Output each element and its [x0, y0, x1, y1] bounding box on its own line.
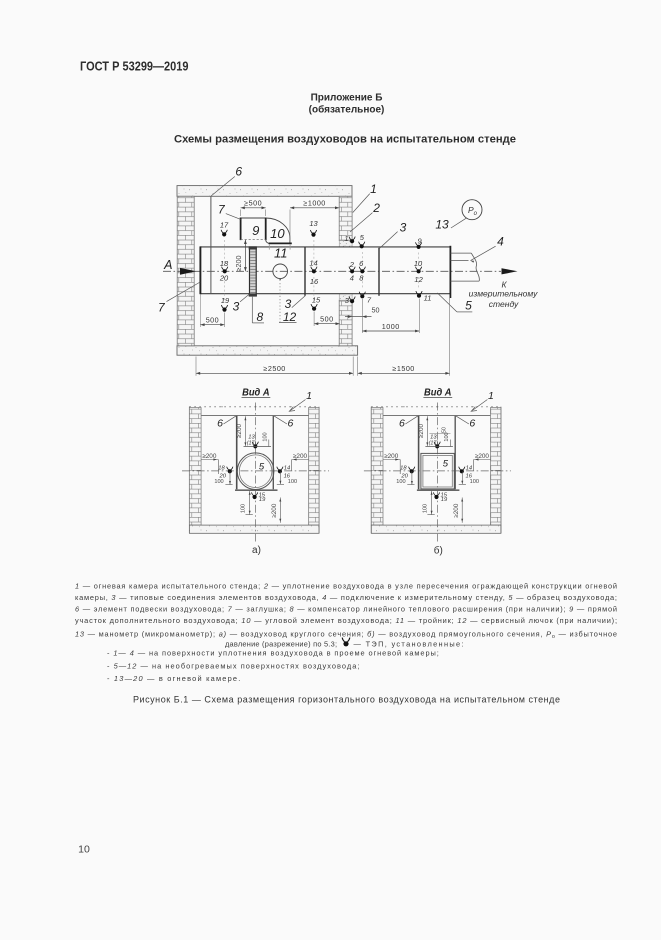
svg-text:9: 9	[252, 223, 259, 238]
svg-text:8: 8	[256, 310, 263, 324]
svg-text:≥1500: ≥1500	[392, 364, 414, 373]
svg-text:— ТЭП, установленные:: — ТЭП, установленные:	[354, 640, 464, 649]
svg-text:20: 20	[219, 274, 229, 283]
svg-text:6 — элемент подвески воздухово: 6 — элемент подвески воздуховода; 7 — за…	[75, 604, 617, 613]
svg-text:15: 15	[312, 296, 321, 305]
svg-text:ГОСТ Р 53299—2019: ГОСТ Р 53299—2019	[80, 59, 189, 74]
svg-text:6: 6	[217, 418, 223, 430]
svg-text:Вид А: Вид А	[424, 387, 452, 399]
svg-text:18: 18	[400, 465, 407, 471]
svg-text:≥2500: ≥2500	[263, 364, 285, 373]
svg-text:13 — манометр (микроманометр);: 13 — манометр (микроманометр); а) — возд…	[75, 629, 617, 640]
svg-text:11: 11	[424, 293, 432, 302]
svg-text:100: 100	[396, 479, 405, 485]
svg-text:1 — огневая камера испытательн: 1 — огневая камера испытательного стенда…	[75, 581, 617, 590]
svg-text:18: 18	[220, 259, 229, 268]
svg-text:100: 100	[262, 432, 268, 441]
svg-text:(17): (17)	[429, 440, 439, 446]
svg-text:≥200: ≥200	[293, 453, 308, 460]
svg-text:10: 10	[414, 259, 423, 268]
svg-text:3: 3	[285, 297, 292, 311]
svg-text:100: 100	[241, 504, 247, 513]
svg-text:500: 500	[320, 315, 334, 324]
svg-text:3: 3	[400, 220, 407, 234]
svg-text:участок дополнительного воздух: участок дополнительного воздуховода; 10 …	[75, 616, 617, 625]
svg-text:5: 5	[465, 299, 472, 313]
svg-text:стенду: стенду	[489, 299, 519, 309]
svg-text:10: 10	[270, 226, 285, 241]
svg-text:1: 1	[370, 182, 377, 196]
svg-text:(17): (17)	[247, 440, 257, 446]
svg-text:19: 19	[441, 497, 448, 503]
svg-text:2: 2	[349, 260, 355, 269]
svg-text:10: 10	[78, 844, 90, 856]
svg-text:13: 13	[309, 219, 318, 228]
svg-text:100: 100	[470, 479, 479, 485]
svg-text:3: 3	[233, 300, 240, 314]
svg-text:≥500: ≥500	[244, 199, 262, 208]
svg-text:Схемы размещения воздуховодов: Схемы размещения воздуховодов на испытат…	[174, 133, 516, 145]
svg-text:1: 1	[488, 390, 494, 402]
svg-text:12: 12	[414, 275, 423, 284]
svg-text:100: 100	[423, 504, 429, 513]
svg-text:20: 20	[218, 474, 226, 480]
svg-text:14: 14	[309, 258, 317, 267]
svg-text:16: 16	[310, 277, 319, 286]
svg-text:4: 4	[497, 235, 504, 249]
svg-text:≥200: ≥200	[418, 423, 425, 438]
svg-text:≥200: ≥200	[271, 503, 278, 518]
svg-text:камеры, 3 — типовые соединения: камеры, 3 — типовые соединения элементов…	[75, 593, 617, 602]
svg-text:Рисунок Б.1 — Схема размещения: Рисунок Б.1 — Схема размещения горизонта…	[133, 694, 560, 704]
svg-text:давление (разрежение) по 5.3;: давление (разрежение) по 5.3;	[225, 640, 337, 649]
svg-text:16: 16	[465, 474, 472, 480]
svg-text:14: 14	[466, 465, 472, 471]
svg-text:Вид А: Вид А	[242, 387, 270, 399]
svg-text:1000: 1000	[382, 322, 400, 331]
svg-text:6: 6	[469, 418, 475, 430]
svg-text:измерительному: измерительному	[469, 289, 539, 299]
svg-text:6: 6	[399, 418, 405, 430]
svg-text:100: 100	[288, 479, 297, 485]
svg-text:5: 5	[259, 462, 265, 473]
svg-text:2: 2	[372, 201, 380, 215]
svg-text:- 13—20 — в огневой камере.: - 13—20 — в огневой камере.	[107, 674, 240, 683]
svg-text:50: 50	[442, 427, 448, 433]
svg-text:6: 6	[287, 418, 293, 430]
svg-text:(обязательное): (обязательное)	[309, 104, 385, 116]
svg-text:11: 11	[274, 246, 288, 261]
svg-text:100: 100	[214, 479, 223, 485]
svg-text:12: 12	[283, 310, 297, 324]
svg-text:4: 4	[350, 274, 354, 283]
svg-text:20: 20	[400, 474, 408, 480]
svg-text:- 1— 4 — на поверхности уплотн: - 1— 4 — на поверхности уплотнения возду…	[107, 649, 439, 658]
svg-text:≥200: ≥200	[453, 503, 460, 518]
svg-text:А: А	[163, 258, 172, 272]
svg-text:500: 500	[206, 316, 220, 325]
svg-text:б): б)	[434, 545, 443, 557]
svg-text:5: 5	[443, 459, 449, 470]
svg-text:19: 19	[259, 497, 266, 503]
svg-text:19: 19	[221, 296, 230, 305]
svg-text:18: 18	[218, 465, 225, 471]
svg-text:17: 17	[220, 221, 229, 230]
svg-text:≥200: ≥200	[236, 423, 243, 438]
svg-text:- 5—12 — на необогреваемых пов: - 5—12 — на необогреваемых поверхностях …	[107, 661, 359, 670]
svg-text:1: 1	[306, 390, 312, 402]
svg-text:1: 1	[344, 234, 348, 243]
svg-text:Приложение Б: Приложение Б	[311, 92, 383, 103]
svg-text:6: 6	[235, 164, 242, 178]
svg-text:14: 14	[284, 465, 290, 471]
svg-text:≥200: ≥200	[475, 453, 490, 460]
svg-text:16: 16	[284, 474, 291, 480]
svg-text:13: 13	[435, 218, 449, 232]
svg-text:≥1000: ≥1000	[303, 199, 325, 208]
svg-text:50: 50	[372, 305, 380, 314]
svg-text:а): а)	[252, 545, 261, 556]
svg-text:≥200: ≥200	[234, 256, 243, 272]
